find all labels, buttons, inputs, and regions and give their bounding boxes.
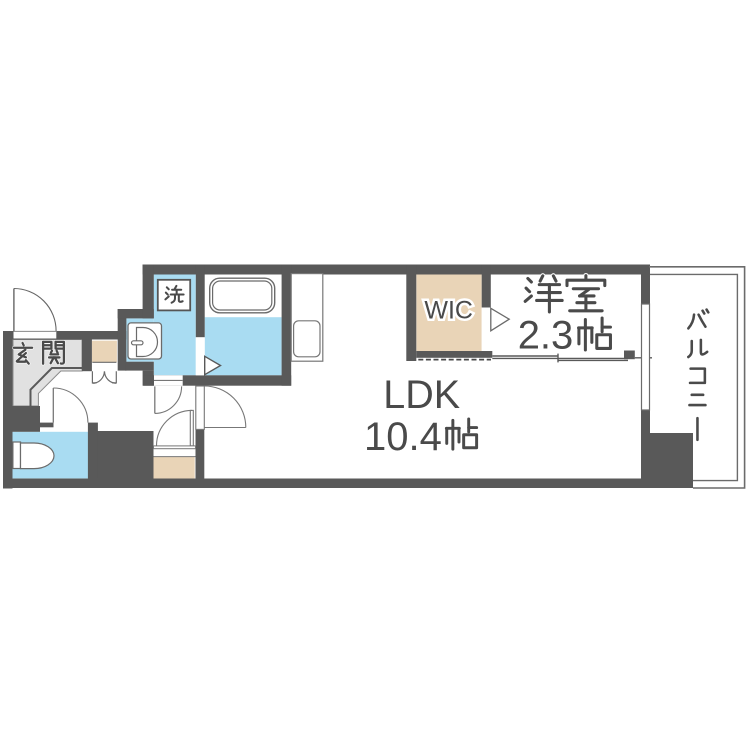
svg-text:10.4: 10.4	[364, 415, 442, 459]
svg-text:2.3: 2.3	[518, 314, 574, 358]
svg-text:WIC: WIC	[424, 297, 473, 325]
svg-text:LDK: LDK	[383, 373, 460, 417]
